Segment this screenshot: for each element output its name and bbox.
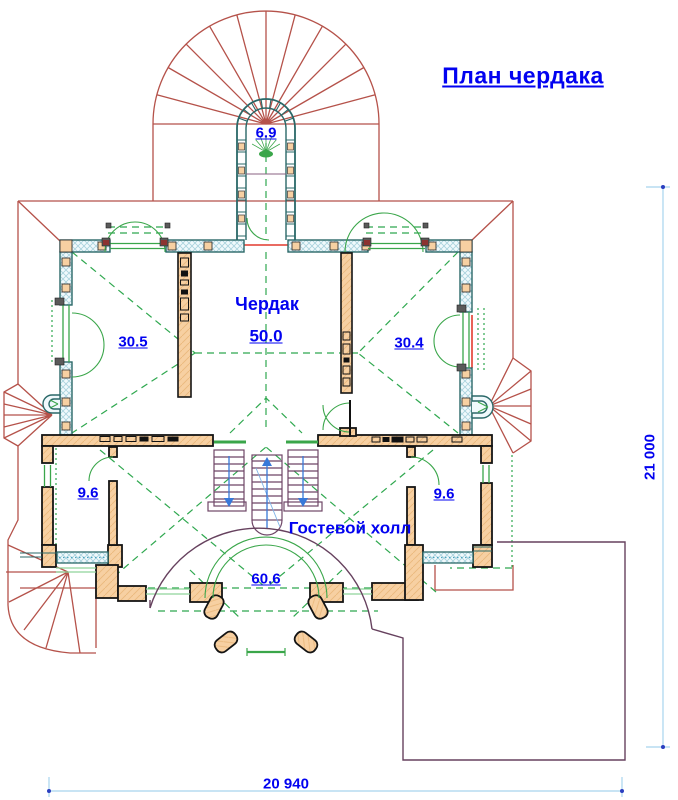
stair-cut-line: [256, 468, 280, 527]
attic-room-name: Чердак: [235, 295, 299, 313]
drawing-title: План чердака: [442, 65, 604, 88]
attic-area-label: 50.0: [249, 328, 282, 345]
attic-right-area-label: 30.4: [394, 336, 423, 351]
dimension-bottom: [47, 777, 624, 797]
attic-floor-plan: План чердака 6.9 Чердак 50.0 30.5 30.4 9…: [0, 0, 678, 800]
floor-plan-drawing: [0, 0, 678, 800]
pillar-vent-glyphs: [181, 258, 351, 386]
attic-pillars: [178, 253, 352, 397]
dimension-height-label: 21 000: [643, 434, 658, 480]
hall-room-name: Гостевой холл: [289, 520, 412, 537]
tower-area-label: 6.9: [256, 126, 277, 141]
roof-accent-lines: [163, 245, 472, 446]
hall-area-label: 60.6: [251, 572, 280, 587]
room-left-area-label: 9.6: [78, 486, 99, 501]
roof-projection-lines: [72, 143, 512, 618]
attic-left-area-label: 30.5: [118, 335, 147, 350]
dimension-width-label: 20 940: [263, 777, 309, 792]
room-right-area-label: 9.6: [434, 487, 455, 502]
